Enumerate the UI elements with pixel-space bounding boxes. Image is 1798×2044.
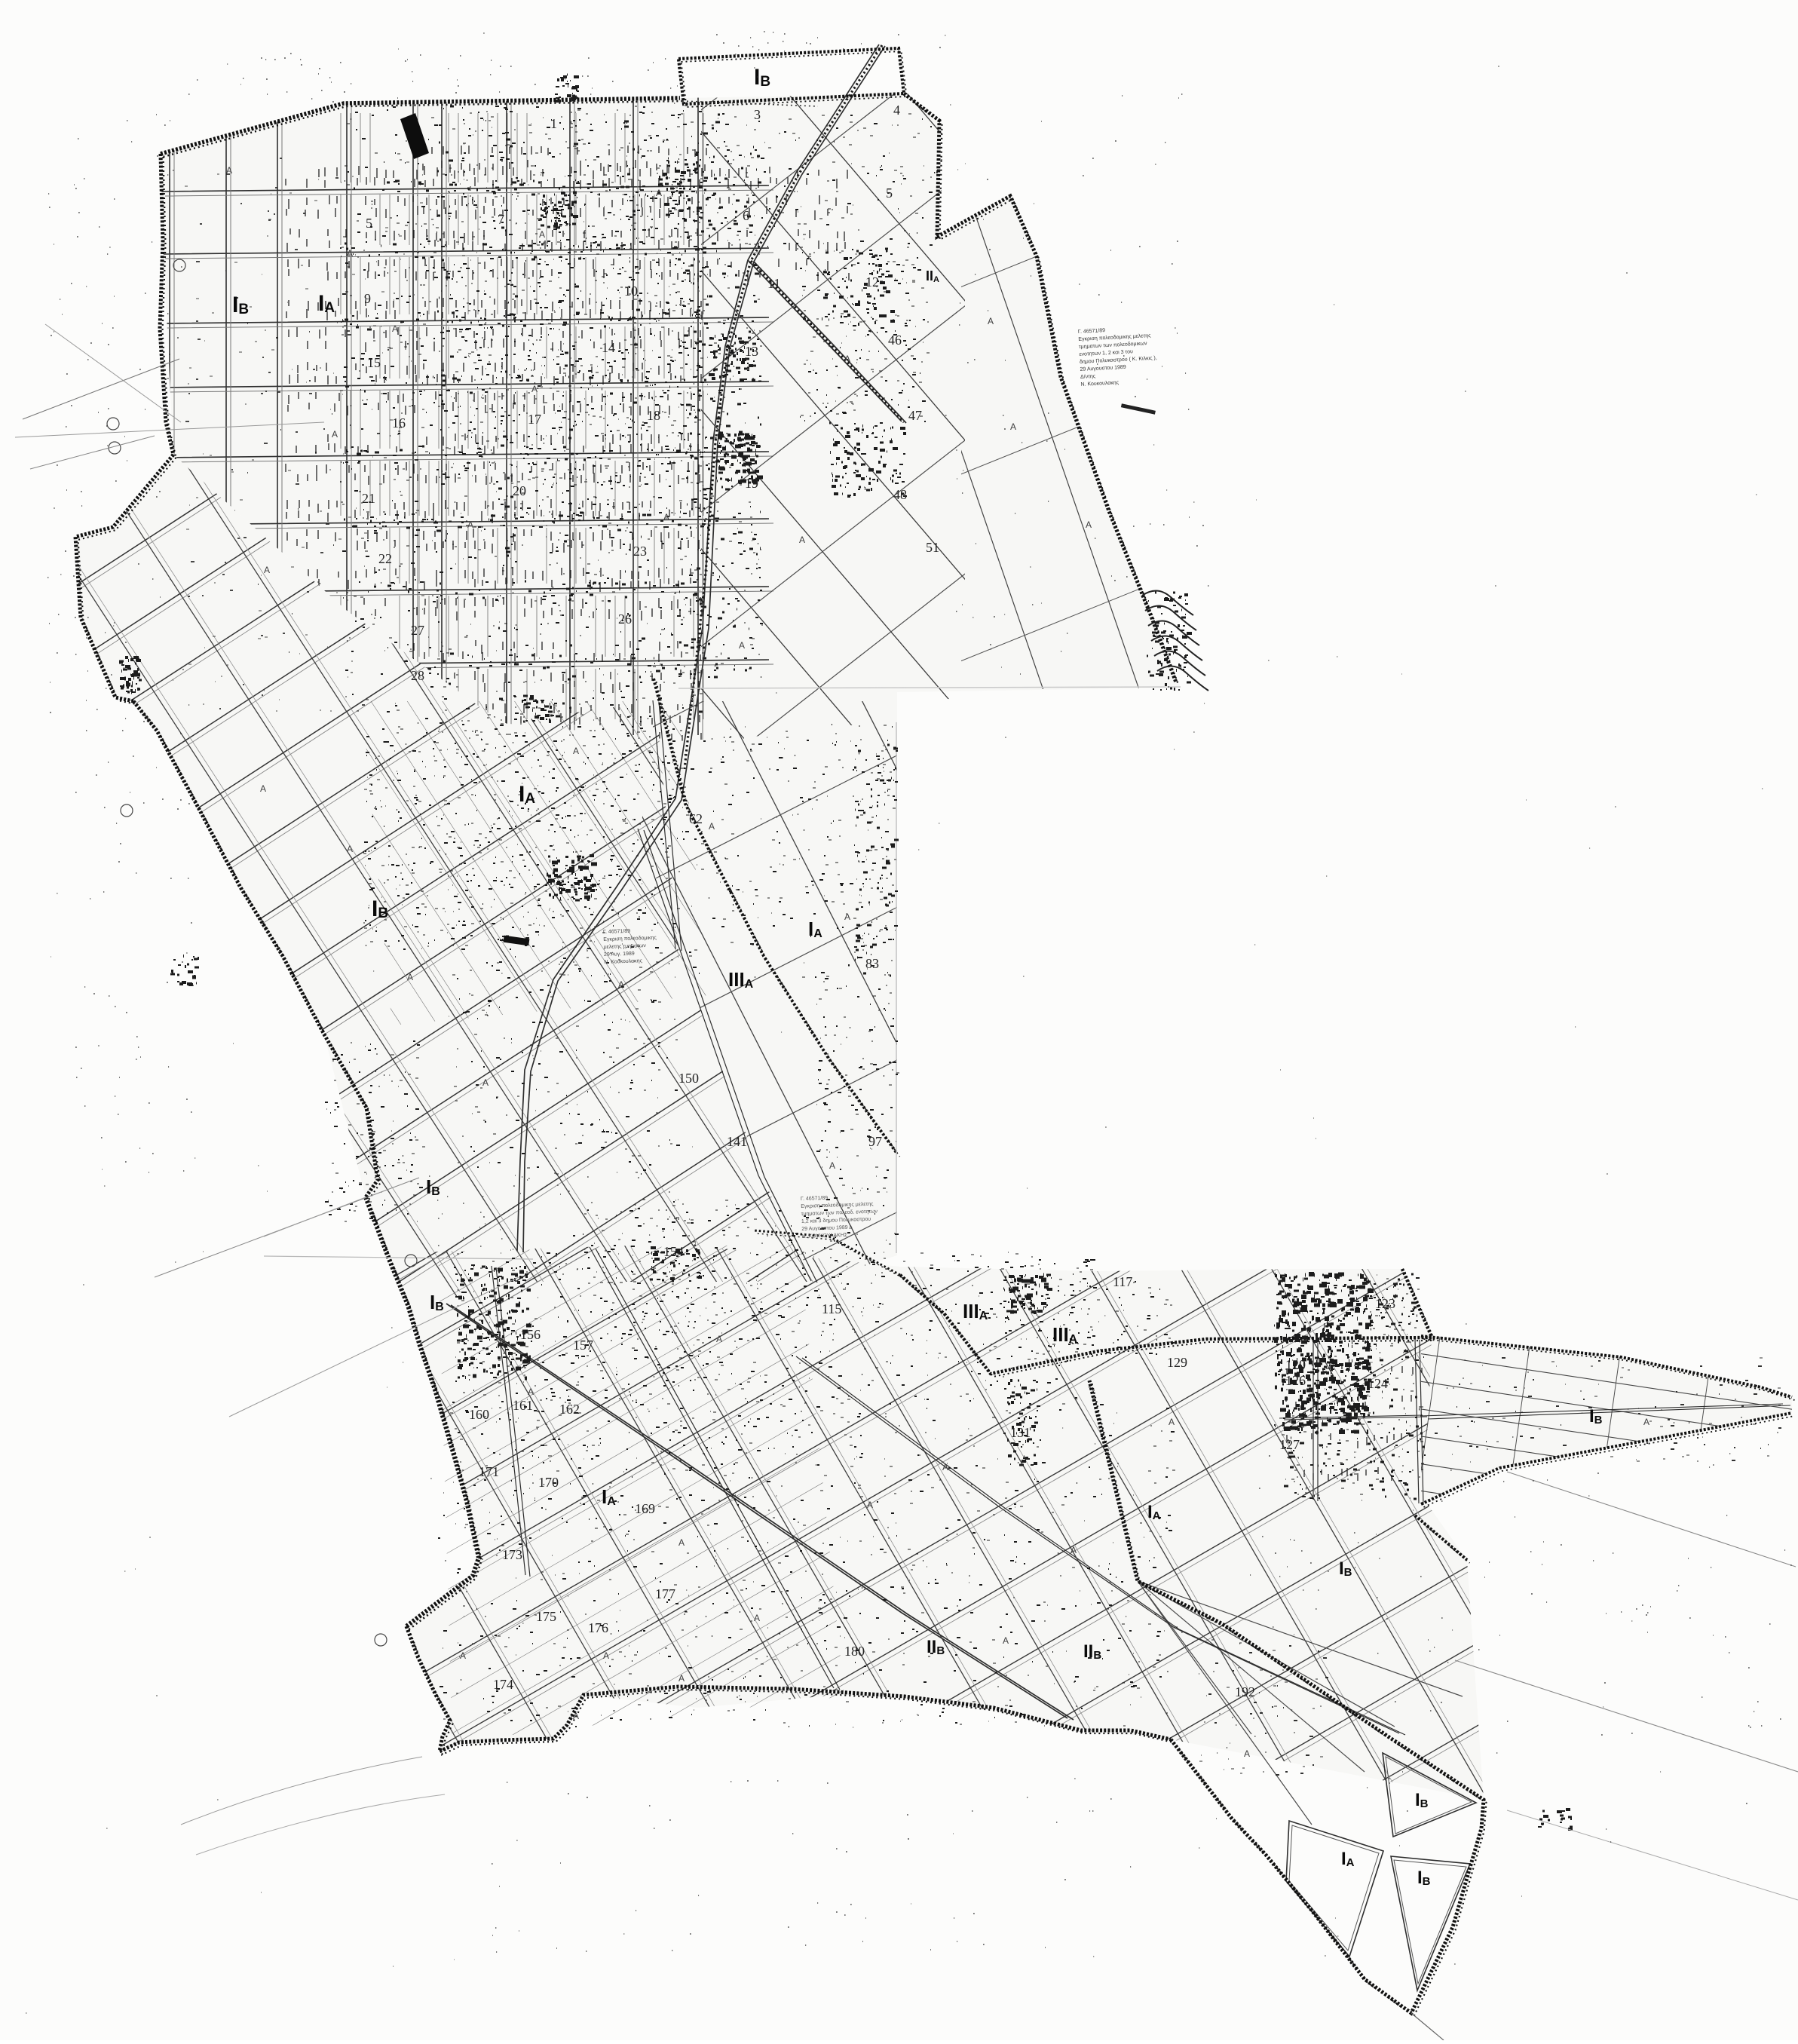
svg-text:162: 162 (559, 1402, 580, 1417)
svg-text:A: A (678, 1537, 685, 1548)
svg-text:29 Αυγ. 1989: 29 Αυγ. 1989 (604, 952, 635, 958)
svg-text:A: A (482, 1077, 489, 1088)
svg-text:10: 10 (624, 283, 638, 299)
svg-text:161: 161 (513, 1398, 533, 1413)
svg-text:115: 115 (822, 1301, 841, 1316)
svg-text:15: 15 (367, 355, 381, 370)
svg-text:A: A (539, 229, 545, 240)
svg-text:127: 127 (1279, 1437, 1300, 1452)
svg-text:174: 174 (493, 1677, 513, 1692)
svg-text:4: 4 (893, 103, 900, 118)
svg-text:A: A (988, 316, 994, 326)
svg-text:11: 11 (767, 276, 780, 291)
svg-text:120: 120 (1285, 1357, 1306, 1372)
svg-text:1: 1 (550, 116, 557, 131)
svg-text:A: A (709, 821, 715, 832)
svg-text:180: 180 (844, 1644, 865, 1659)
svg-text:5: 5 (366, 216, 372, 231)
svg-text:Γ. 46571/89: Γ. 46571/89 (603, 929, 631, 935)
svg-text:A: A (754, 1613, 760, 1623)
svg-text:176: 176 (588, 1620, 608, 1635)
svg-text:12: 12 (865, 274, 879, 290)
svg-text:A: A (844, 354, 850, 364)
svg-text:A: A (1086, 519, 1092, 530)
svg-text:124: 124 (1368, 1376, 1388, 1391)
svg-text:173: 173 (502, 1547, 522, 1562)
svg-text:A: A (407, 972, 413, 982)
svg-text:171: 171 (479, 1464, 499, 1479)
svg-text:A: A (716, 1334, 722, 1344)
svg-text:A: A (1003, 1635, 1009, 1646)
svg-text:46: 46 (888, 332, 902, 348)
svg-text:A: A (1071, 1545, 1077, 1555)
svg-text:A: A (799, 535, 805, 545)
svg-text:A: A (1643, 1417, 1649, 1427)
svg-text:150: 150 (678, 1071, 699, 1086)
svg-text:A: A (460, 1650, 466, 1661)
svg-text:123: 123 (1375, 1296, 1395, 1311)
svg-text:17: 17 (528, 412, 541, 427)
svg-text:A: A (392, 323, 398, 334)
svg-text:3: 3 (754, 107, 761, 122)
svg-text:154: 154 (663, 1244, 684, 1259)
svg-text:Δ/ντης: Δ/ντης (1080, 374, 1096, 380)
svg-text:A: A (467, 519, 473, 530)
svg-text:117: 117 (1113, 1274, 1132, 1289)
svg-text:141: 141 (727, 1134, 747, 1149)
svg-text:47: 47 (908, 408, 922, 423)
svg-text:A: A (1244, 1748, 1250, 1759)
svg-text:A: A (531, 384, 538, 394)
svg-text:A: A (1010, 421, 1016, 432)
svg-text:A: A (573, 746, 579, 756)
svg-text:192: 192 (1235, 1684, 1255, 1699)
svg-text:A: A (829, 1160, 835, 1171)
svg-text:157: 157 (573, 1338, 593, 1353)
svg-text:A: A (678, 1673, 685, 1684)
svg-text:20: 20 (513, 483, 526, 498)
svg-text:6: 6 (743, 208, 749, 223)
svg-text:A: A (332, 429, 338, 440)
svg-text:16: 16 (392, 415, 406, 431)
svg-text:A: A (603, 1650, 609, 1661)
svg-text:A: A (1169, 1417, 1175, 1427)
svg-text:A: A (618, 979, 624, 990)
svg-text:131: 131 (1010, 1425, 1031, 1440)
svg-text:170: 170 (538, 1475, 559, 1490)
svg-text:126: 126 (1285, 1373, 1306, 1388)
svg-text:62: 62 (689, 811, 703, 826)
svg-text:A: A (656, 188, 662, 198)
svg-text:160: 160 (469, 1407, 489, 1422)
svg-text:A: A (844, 912, 850, 922)
svg-text:23: 23 (633, 544, 647, 559)
svg-text:21: 21 (362, 491, 375, 506)
svg-text:Γ. 46571/89: Γ. 46571/89 (801, 1196, 829, 1202)
svg-text:22: 22 (378, 551, 392, 566)
svg-text:A: A (264, 565, 270, 575)
svg-text:A: A (739, 640, 745, 651)
svg-text:28: 28 (411, 668, 424, 683)
svg-text:A: A (942, 1462, 948, 1472)
svg-text:51: 51 (926, 540, 939, 555)
svg-text:26: 26 (618, 611, 632, 627)
svg-text:83: 83 (865, 956, 879, 971)
svg-text:97: 97 (868, 1134, 882, 1149)
svg-text:129: 129 (1167, 1355, 1187, 1370)
svg-text:A: A (347, 248, 353, 259)
svg-text:27: 27 (411, 623, 424, 638)
svg-text:A: A (226, 165, 232, 176)
svg-text:A: A (347, 844, 353, 854)
svg-text:177: 177 (655, 1586, 675, 1601)
svg-text:A: A (528, 1387, 534, 1397)
svg-text:169: 169 (635, 1501, 655, 1516)
svg-text:A: A (663, 512, 669, 522)
svg-text:19: 19 (745, 476, 758, 491)
svg-text:7: 7 (498, 212, 504, 227)
svg-text:156: 156 (520, 1327, 541, 1342)
svg-text:A: A (260, 783, 266, 794)
svg-text:A: A (573, 1711, 579, 1721)
svg-text:9: 9 (364, 291, 371, 306)
svg-text:5: 5 (886, 185, 893, 201)
svg-text:18: 18 (647, 408, 660, 423)
svg-text:A: A (867, 1500, 873, 1510)
svg-text:48: 48 (893, 487, 907, 502)
svg-text:13: 13 (745, 344, 758, 359)
svg-text:175: 175 (536, 1609, 556, 1624)
svg-text:14: 14 (602, 340, 615, 355)
